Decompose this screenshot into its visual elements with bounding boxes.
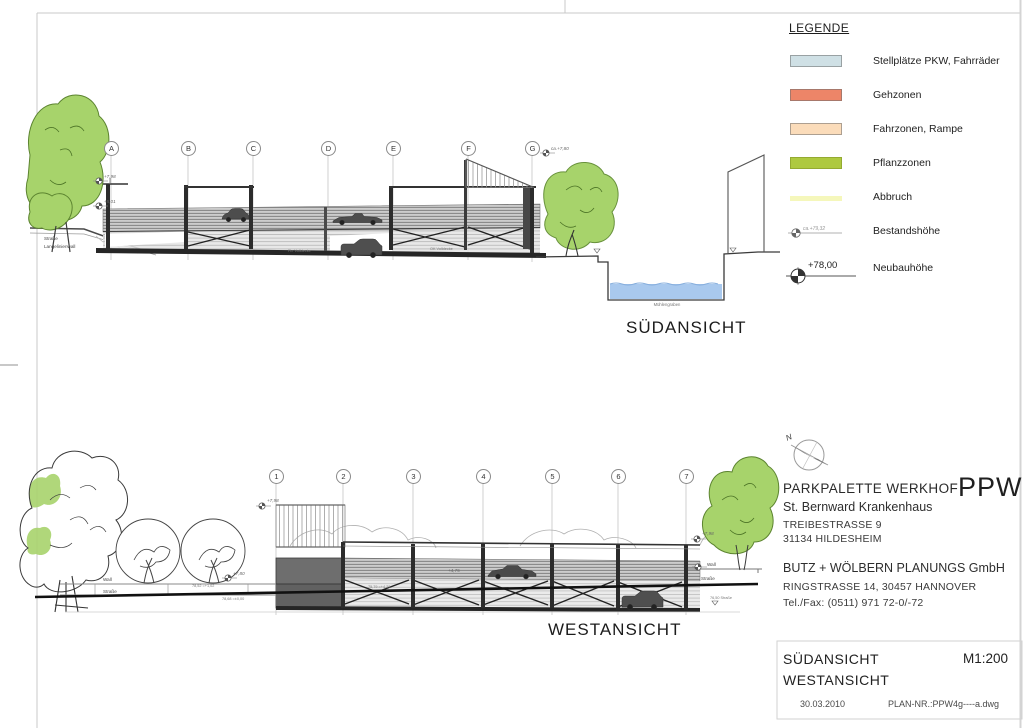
drawing-canvas	[0, 0, 1024, 728]
west-mark-street-b: 78,68 =±0,00	[222, 597, 244, 601]
sued-water-channel	[536, 248, 780, 300]
west-grid-1: 1	[269, 469, 284, 484]
sued-note-1: Fb. Volldecke	[288, 249, 311, 253]
planner-name: BUTZ + WÖLBERN PLANUNGS GmbH	[783, 561, 1005, 575]
legend-label-gehzonen: Gehzonen	[873, 89, 921, 101]
west-railing	[343, 542, 700, 549]
legend-label-neubauhoehe: Neubauhöhe	[873, 262, 933, 274]
legend-swatch-gehzonen	[790, 89, 842, 101]
west-grid-3: 3	[406, 469, 421, 484]
client-city: 31134 HILDESHEIM	[783, 533, 882, 545]
page-frame	[0, 0, 1022, 728]
sued-mark-a-top: +7,98	[104, 174, 116, 179]
west-street-label-left: Straße	[103, 589, 117, 594]
planner-street: RINGSTRASSE 14, 30457 HANNOVER	[783, 581, 976, 593]
sued-mark-g-top: ca.+7,80	[551, 146, 569, 151]
water-surface	[610, 284, 722, 299]
planner-phone: Tel./Fax: (0511) 971 72-0/-72	[783, 597, 923, 609]
legend-label-abbruch: Abbruch	[873, 191, 912, 203]
west-benchmark-tower	[256, 503, 271, 509]
west-mark-street-r: 76,50 Straße	[710, 596, 732, 600]
sheet-view-2: WESTANSICHT	[783, 672, 889, 688]
west-mark-tower-top: +7,98	[267, 498, 279, 503]
sued-grid-f: F	[461, 141, 476, 156]
legend-symbols	[786, 229, 856, 285]
project-logo: PPW	[958, 472, 1023, 503]
sheet-scale: M1:200	[963, 651, 1008, 666]
legend-label-bestandshoehe: Bestandshöhe	[873, 225, 940, 237]
north-compass-icon	[791, 440, 828, 470]
sued-ramp-railing	[466, 159, 534, 188]
project-title: PARKPALETTE WERKHOF	[783, 481, 958, 496]
sued-tree-right	[544, 162, 618, 256]
sheet-view-1: SÜDANSICHT	[783, 651, 879, 667]
sheet-date: 30.03.2010	[800, 699, 845, 709]
sued-right-wall	[728, 155, 764, 253]
west-wall-label-right: Wall	[707, 562, 716, 567]
west-grid-6: 6	[611, 469, 626, 484]
legend-neubauhoehe-value: +78,00	[808, 260, 837, 271]
west-wall-label-left: Wall	[103, 577, 112, 582]
sued-grid-a: A	[104, 141, 119, 156]
client-name: St. Bernward Krankenhaus	[783, 500, 932, 514]
west-trellis	[276, 505, 345, 547]
sued-grid-c: C	[246, 141, 261, 156]
plan-sheet: LEGENDE Stellplätze PKW, Fahrräder Gehzo…	[0, 0, 1024, 728]
west-mark-tree: +7,80	[233, 571, 245, 576]
water-level-marks	[594, 248, 736, 253]
west-tree-right	[702, 457, 778, 570]
legend-swatch-abbruch	[790, 196, 842, 201]
legend-label-fahrzonen: Fahrzonen, Rampe	[873, 123, 963, 135]
west-mark-deck: +4,75	[448, 568, 460, 573]
legend-label-pflanzzonen: Pflanzzonen	[873, 157, 931, 169]
client-street: TREIBESTRASSE 9	[783, 519, 882, 531]
sued-water-label: Mühlengraben	[637, 302, 697, 307]
legend-bestandshoehe-value: ca.+79,32	[803, 226, 825, 232]
west-grid-4: 4	[476, 469, 491, 484]
west-grid-7: 7	[679, 469, 694, 484]
sued-road-label-2: Langelinienwall	[44, 244, 75, 249]
west-grid-2: 2	[336, 469, 351, 484]
west-view-label: WESTANSICHT	[548, 620, 681, 640]
sheet-plan-number: PLAN-NR.:PPW4g----a.dwg	[888, 699, 999, 709]
west-round-trees	[116, 519, 245, 583]
legend-swatch-stellplaetze	[790, 55, 842, 67]
legend-swatch-pflanzzonen	[790, 157, 842, 169]
sued-note-2: OK Volldecke	[430, 247, 453, 251]
west-street-label-right: Straße	[701, 576, 715, 581]
sued-view-label: SÜDANSICHT	[626, 318, 747, 338]
sued-grid-e: E	[386, 141, 401, 156]
west-tree-left	[20, 451, 128, 612]
sued-grid-d: D	[321, 141, 336, 156]
legend-swatch-fahrzonen	[790, 123, 842, 135]
westansicht-drawing	[20, 451, 779, 615]
legend-label-stellplaetze: Stellplätze PKW, Fahrräder	[873, 55, 1000, 67]
sued-road-label-1: Straße	[44, 236, 58, 241]
west-mark-ramp: 75,79 =+4,29	[368, 585, 390, 589]
west-mark-street-a: 78,52 =+1,02	[192, 584, 214, 588]
west-grid-5: 5	[545, 469, 560, 484]
suedansicht-drawing	[26, 95, 780, 300]
west-stair-tower	[276, 558, 343, 608]
west-benchmark-right-top	[691, 536, 706, 542]
sued-structure	[96, 159, 546, 258]
west-mark-right-top: +7,98	[702, 531, 714, 536]
sued-grid-g: G	[525, 141, 540, 156]
sued-grid-b: B	[181, 141, 196, 156]
legend-title: LEGENDE	[789, 21, 849, 35]
sued-mark-a-mid: +5,01	[104, 199, 116, 204]
